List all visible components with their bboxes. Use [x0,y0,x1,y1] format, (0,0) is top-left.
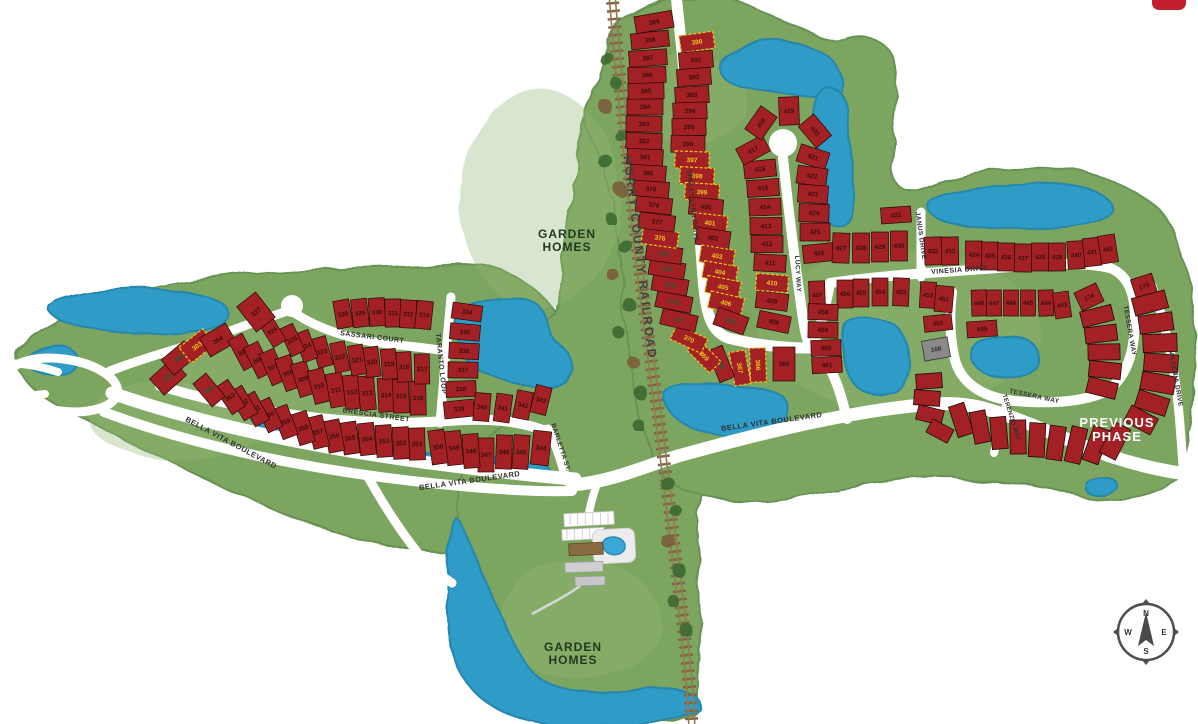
lot-409[interactable]: 409 [755,291,789,312]
lot-number: 344 [535,445,547,453]
lot-443[interactable]: 443 [1052,291,1071,319]
lot-445[interactable]: 445 [1021,290,1036,316]
tree [599,155,613,169]
lot-344[interactable]: 344 [530,430,551,466]
lot-number: 385 [641,88,652,95]
lot-number: 330 [372,309,383,317]
lot-427[interactable]: 427 [832,233,850,264]
tree [662,535,676,549]
lot-number: 387 [642,55,654,63]
lot-446[interactable]: 446 [1004,290,1019,316]
lot-450[interactable]: 450 [923,314,953,333]
lot-number: 399 [696,189,708,197]
tree [674,565,688,579]
previous-phase-lot[interactable] [1028,423,1046,458]
lot-number: 436 [1001,254,1012,261]
lot-448[interactable]: 448 [971,290,987,317]
lot-number: 312 [346,389,358,397]
lot-number: 352 [395,440,407,448]
previous-phase-lot[interactable] [916,373,943,390]
ui-layer [1152,0,1186,10]
lot-number: 395 [684,124,695,131]
lot-number: 452 [923,292,934,300]
lot-number: 354 [361,436,373,444]
lot-number: 393 [686,92,698,100]
lot-438[interactable]: 438 [1032,243,1049,271]
lucy-culdesac [769,129,797,157]
lot-number: 392 [688,74,700,82]
lot-346[interactable]: 346 [495,435,512,470]
lot-number: 427 [835,245,846,252]
area-label-garden-homes-south: GARDENHOMES [544,640,602,667]
lot-423[interactable]: 423 [797,184,828,204]
lot-number: 401 [704,220,716,228]
lot-395[interactable]: 395 [672,118,706,136]
compass-tick-north [1142,599,1150,604]
lot-396[interactable]: 396 [671,135,705,153]
lot-number: 316 [413,395,424,402]
gray-building [575,576,605,586]
lot-353[interactable]: 353 [375,424,393,457]
previous-phase-lot[interactable] [1088,360,1121,379]
lot-348[interactable]: 348 [462,433,480,468]
lot-339[interactable]: 339 [443,399,475,419]
lot-number: 386 [641,72,652,79]
lot-number: 451 [938,296,949,304]
tree [631,418,643,430]
lot-384[interactable]: 384 [627,99,663,115]
lot-316[interactable]: 316 [410,381,427,415]
lot-number: 329 [355,310,367,318]
lot-415[interactable]: 415 [746,178,779,197]
lot-number: 345 [515,449,527,457]
previous-phase-lot[interactable] [914,390,941,407]
lot-number: 460 [820,345,831,352]
lot-444[interactable]: 444 [1038,290,1054,317]
lot-number: 388 [644,37,656,45]
lot-number: 317 [417,366,428,373]
lot-333[interactable]: 333 [415,300,434,330]
lot-459[interactable]: 459 [808,322,838,339]
lot-456[interactable]: 456 [837,280,853,308]
lot-number: 391 [690,57,702,65]
pond-se-small [1085,478,1119,498]
lot-383[interactable]: 383 [626,116,662,133]
lot-number: 411 [765,260,776,268]
lot-447[interactable]: 447 [986,290,1001,316]
compass-tick-south [1142,660,1150,665]
tree [604,212,616,224]
lot-number: 396 [682,141,693,148]
lot-452[interactable]: 452 [919,282,936,309]
lot-460[interactable]: 460 [811,339,842,356]
lot-number: 377 [651,219,663,227]
site-plan-stage: 3013023033043053063073083093103113123133… [0,0,1198,724]
tree [627,356,639,368]
lot-number: 336 [458,348,470,356]
previous-phase-lot[interactable] [1088,344,1120,361]
lot-number: 341 [497,405,509,413]
lot-338[interactable]: 338 [446,380,477,397]
lot-number: 366 [754,359,761,370]
tree [601,53,615,67]
lot-351[interactable]: 351 [408,428,425,461]
lot-number: 349 [448,445,460,453]
lot-number: 346 [498,449,509,456]
lot-number: 447 [989,300,1000,307]
lot-number: 348 [465,448,477,456]
lot-392[interactable]: 392 [676,67,711,86]
lot-410[interactable]: 410 [755,273,788,293]
lot-number: 351 [411,441,422,448]
lot-number: 340 [476,404,487,412]
lot-number: 443 [1056,301,1068,309]
lot-number: 434 [969,252,980,259]
lot-341[interactable]: 341 [493,393,513,423]
lot-number: 347 [481,452,492,459]
lot-number: 438 [1035,254,1046,261]
lot-number: 335 [459,329,471,337]
lot-number: 415 [757,185,769,193]
lot-340[interactable]: 340 [473,392,491,421]
lot-433[interactable]: 433 [941,237,958,265]
lot-345[interactable]: 345 [512,434,530,469]
lot-391[interactable]: 391 [678,50,713,70]
lot-number: 445 [1023,300,1034,307]
lot-number: 379 [645,186,657,194]
lot-168[interactable]: 168 [921,337,950,361]
tree [666,594,678,606]
lot-386[interactable]: 386 [628,66,667,83]
lot-number: 426 [813,250,825,258]
lot-number: 400 [700,204,712,212]
lot-number: 320 [366,359,378,367]
lot-365[interactable]: 365 [773,347,795,381]
lot-449[interactable]: 449 [966,320,997,338]
lot-number: 431 [890,212,902,220]
lot-332[interactable]: 332 [399,300,416,329]
lot-number: 454 [875,289,886,296]
lot-number: 381 [639,154,651,162]
lot-317[interactable]: 317 [414,354,430,384]
lot-number: 433 [945,248,956,255]
lot-number: 450 [933,320,945,328]
lot-331[interactable]: 331 [385,299,401,327]
tree [613,128,625,140]
lot-number: 410 [766,280,778,288]
lot-number: 337 [457,367,468,374]
lot-number: 412 [762,241,773,248]
lot-number: 318 [398,364,410,372]
lot-number: 382 [638,138,649,145]
sassari-culdesac [281,295,303,317]
lot-number: 449 [976,326,988,334]
compass-rose: NESW [1113,599,1179,665]
previous-phase-lot[interactable] [1084,324,1118,344]
tree [612,326,624,338]
lot-number: 430 [894,243,905,250]
area-label-garden-homes-north: GARDENHOMES [538,227,596,254]
lot-437[interactable]: 437 [1014,244,1031,272]
lot-number: 425 [810,229,821,236]
lot-394[interactable]: 394 [673,102,708,120]
tree [621,297,635,311]
lot-454[interactable]: 454 [872,278,888,306]
lot-number: 457 [812,292,823,299]
compass-label-west: W [1124,628,1132,637]
lot-number: 365 [779,361,790,368]
lot-number: 458 [817,309,828,316]
lot-number: 416 [754,166,766,174]
gray-building [565,561,603,572]
lot-number: 409 [766,298,778,306]
lot-number: 439 [1052,254,1063,261]
lot-number: 394 [684,108,695,115]
lot-319[interactable]: 319 [380,348,398,379]
lot-number: 423 [807,191,819,199]
lot-number: 419 [784,108,795,115]
lot-430[interactable]: 430 [891,231,908,261]
tree [611,78,623,90]
map-control-button[interactable] [1152,0,1186,10]
compass-tick-east [1174,628,1179,636]
lot-453[interactable]: 453 [893,278,910,307]
lot-330[interactable]: 330 [368,297,386,326]
lot-428[interactable]: 428 [853,233,870,263]
lot-424[interactable]: 424 [799,203,830,222]
tree [671,506,683,518]
lot-414[interactable]: 414 [749,198,782,216]
lot-336[interactable]: 336 [449,342,480,360]
lot-385[interactable]: 385 [628,83,664,100]
lot-335[interactable]: 335 [449,323,480,342]
tree [598,99,612,113]
lot-393[interactable]: 393 [675,86,710,105]
compass-tick-west [1113,628,1118,636]
tree [618,239,632,253]
lot-461[interactable]: 461 [812,356,843,374]
lot-number: 444 [1041,300,1052,307]
lot-number: 437 [1018,255,1029,262]
lot-number: 413 [761,223,772,230]
lot-313[interactable]: 313 [358,375,377,410]
lot-413[interactable]: 413 [750,217,782,235]
lot-455[interactable]: 455 [853,279,869,307]
compass-label-east: E [1161,628,1167,637]
lot-number: 338 [455,386,466,393]
lot-411[interactable]: 411 [754,254,787,273]
lot-315[interactable]: 315 [392,379,409,414]
tree [608,270,620,282]
lot-number: 461 [821,362,833,370]
previous-phase-lot[interactable] [990,416,1009,449]
lot-429[interactable]: 429 [872,232,889,262]
lot-337[interactable]: 337 [448,362,478,379]
swimming-pool [603,537,625,555]
lot-number: 380 [642,170,654,178]
tree [677,621,691,635]
lot-number: 378 [648,202,660,210]
lot-number: 314 [380,392,392,400]
lot-number: 432 [928,248,939,255]
lot-number: 448 [974,300,985,307]
lot-number: 384 [640,104,651,111]
compass-label-north: N [1143,609,1149,618]
lot-number: 429 [875,244,886,251]
lot-352[interactable]: 352 [392,427,410,460]
lot-number: 383 [638,121,649,128]
lot-number: 441 [1087,249,1099,257]
lot-number: 315 [395,393,406,400]
lot-number: 446 [1006,300,1017,307]
lot-458[interactable]: 458 [808,303,839,320]
lot-number: 313 [361,390,373,398]
lot-451[interactable]: 451 [934,285,954,312]
lot-426[interactable]: 426 [802,242,836,263]
lot-425[interactable]: 425 [800,223,830,241]
lot-419[interactable]: 419 [779,97,800,126]
lot-439[interactable]: 439 [1048,243,1065,271]
lot-number: 440 [1071,252,1082,260]
community-site-map: 3013023033043053063073083093103113123133… [0,0,1198,724]
lot-318[interactable]: 318 [396,352,413,383]
lot-number: 428 [856,245,867,252]
lot-number: 459 [817,327,828,334]
lot-366[interactable]: 366 [749,348,766,383]
lot-436[interactable]: 436 [997,243,1014,271]
lot-number: 331 [388,310,399,317]
lot-number: 453 [896,289,907,296]
lot-number: 455 [856,290,867,297]
land-texture [460,90,620,310]
lot-number: 333 [418,312,430,320]
lot-431[interactable]: 431 [880,206,911,224]
lot-382[interactable]: 382 [626,132,663,149]
lot-number: 319 [383,361,395,369]
pond-tessera [971,336,1038,380]
lot-number: 435 [985,253,996,260]
lot-number: 414 [759,204,770,211]
lot-number: 456 [840,291,851,298]
lot-number: 339 [453,406,465,414]
lot-354[interactable]: 354 [357,422,376,455]
lot-387[interactable]: 387 [628,49,667,68]
lot-number: 353 [378,438,390,446]
tree [635,387,649,401]
compass-label-south: S [1143,647,1149,656]
pond-lucy-east [843,317,910,396]
lot-number: 424 [808,210,819,217]
lot-number: 332 [403,311,414,319]
lot-number: 397 [686,157,697,164]
clubhouse-building [569,542,604,556]
lot-422[interactable]: 422 [796,165,828,187]
lot-329[interactable]: 329 [350,298,369,328]
parking-lot [564,511,615,527]
tree [661,477,675,491]
lot-412[interactable]: 412 [751,236,783,253]
